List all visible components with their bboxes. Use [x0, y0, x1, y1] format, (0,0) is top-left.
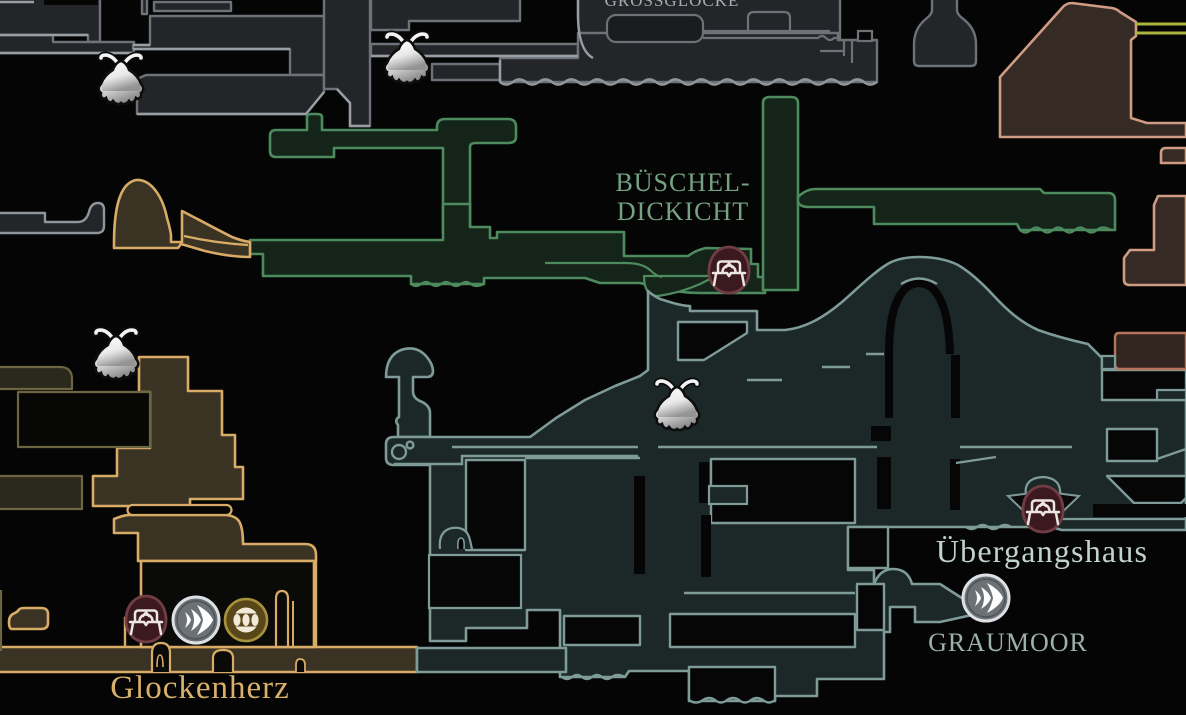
svg-text:GRAUMOOR: GRAUMOOR — [928, 628, 1088, 657]
svg-text:Übergangshaus: Übergangshaus — [936, 533, 1148, 569]
svg-text:GROSSGLOCKE: GROSSGLOCKE — [605, 0, 740, 10]
svg-text:BÜSCHEL-: BÜSCHEL- — [615, 168, 750, 197]
svg-text:Glockenherz: Glockenherz — [110, 670, 290, 706]
svg-text:DICKICHT: DICKICHT — [617, 197, 749, 226]
